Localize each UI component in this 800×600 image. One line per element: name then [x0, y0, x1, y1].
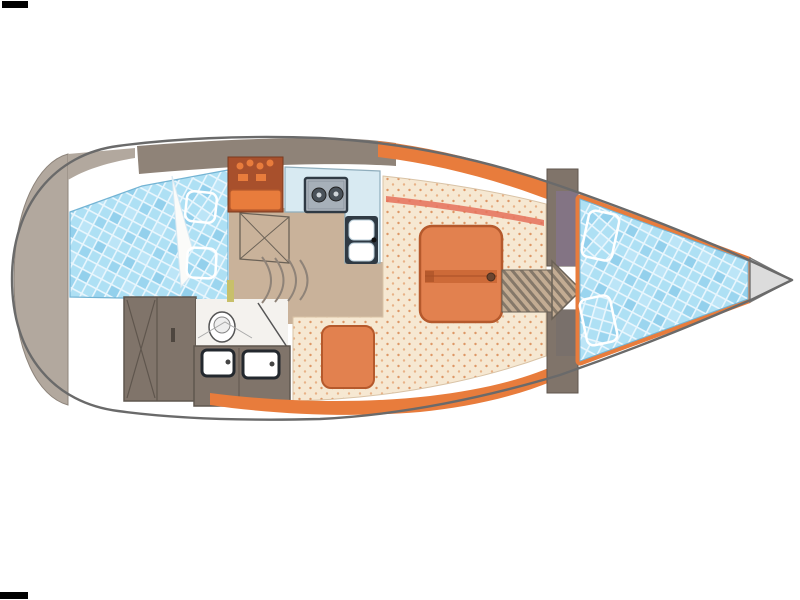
head-accent-strip — [227, 280, 234, 302]
floor-plan-canvas — [0, 0, 800, 600]
bulkhead-port-panel — [556, 191, 578, 266]
stove-burner-right-cap — [334, 192, 339, 197]
toilet-seat — [214, 317, 230, 333]
stove-burner-left-cap — [317, 193, 322, 198]
bottle-rack-item — [267, 160, 274, 167]
table-leaf-knob — [487, 273, 495, 281]
bottle-rack-item — [238, 174, 248, 181]
bow-passage-walkway — [502, 270, 552, 312]
sink-basin-lower — [349, 243, 374, 261]
galley-drawer — [230, 190, 281, 210]
bottle-rack-item — [257, 163, 264, 170]
bulkhead-starboard-panel — [556, 310, 578, 356]
sink-basin-upper — [349, 220, 374, 240]
bottle-rack-item — [256, 174, 266, 181]
floor-galley — [288, 212, 348, 324]
wardrobe-body — [124, 297, 196, 401]
wardrobe-handle — [171, 328, 175, 342]
yacht-floor-plan — [0, 0, 800, 600]
aft-pillow-2 — [186, 247, 217, 278]
sink-faucet — [372, 238, 377, 243]
bottle-rack-item — [237, 163, 244, 170]
settee-stool — [322, 326, 374, 388]
bottle-rack-item — [247, 160, 254, 167]
floor-saloon — [345, 262, 387, 324]
aft-pillow-1 — [185, 191, 218, 224]
bottom-left-crop-bar — [0, 592, 28, 599]
faucet-left — [226, 360, 231, 365]
faucet-right — [270, 362, 275, 367]
top-left-crop-bar — [2, 1, 28, 8]
wardrobe — [124, 297, 196, 401]
stern-block — [14, 154, 68, 405]
